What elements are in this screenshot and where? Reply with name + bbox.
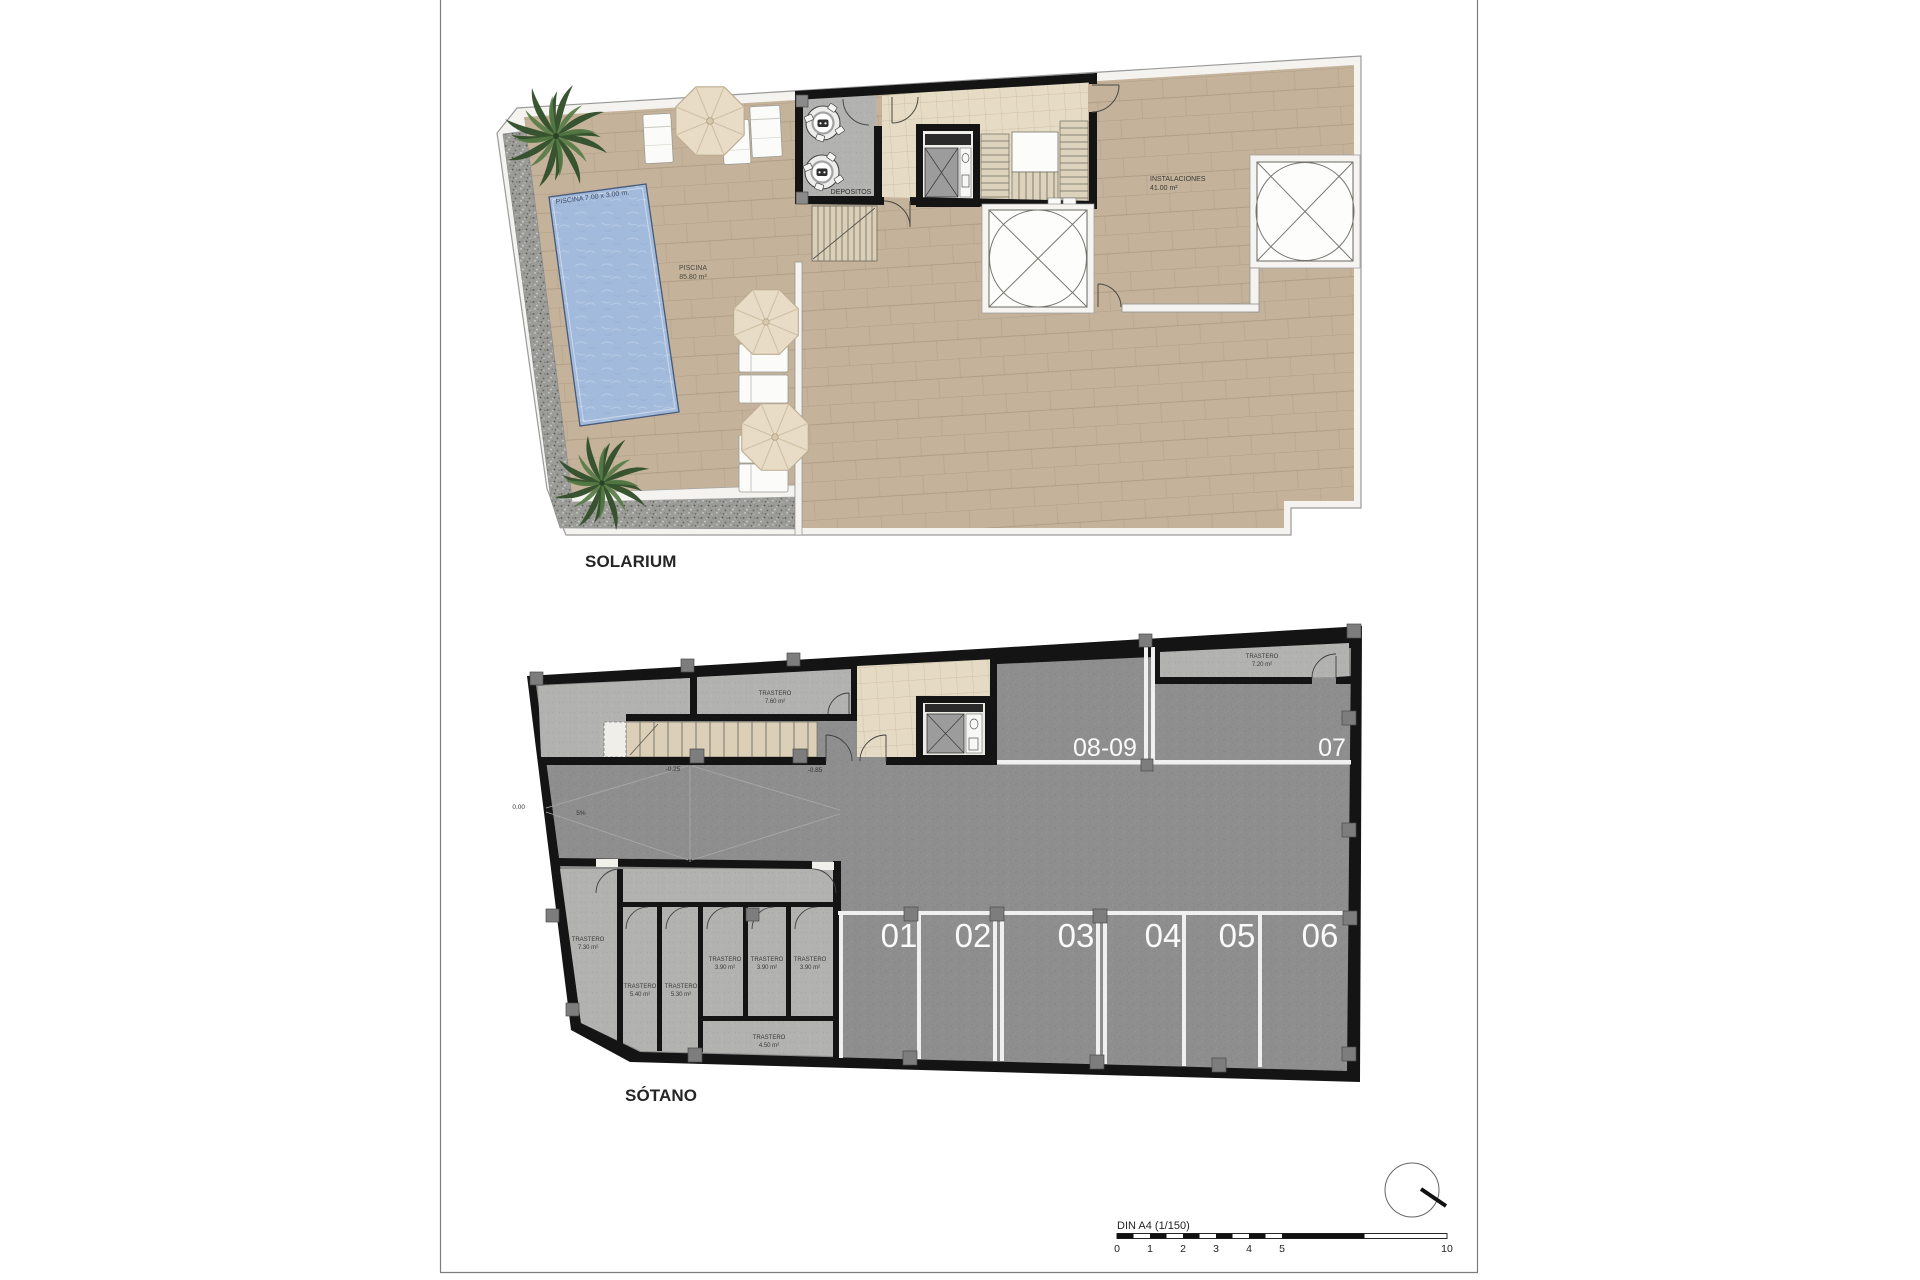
- svg-text:TRASTERO: TRASTERO: [759, 691, 792, 697]
- svg-text:DIN A4 (1/150): DIN A4 (1/150): [1117, 1220, 1190, 1232]
- svg-text:3.90 m²: 3.90 m²: [757, 965, 777, 971]
- svg-text:10: 10: [1441, 1243, 1453, 1255]
- svg-text:06: 06: [1302, 917, 1339, 954]
- svg-text:07: 07: [1318, 734, 1346, 762]
- svg-text:85.80 m²: 85.80 m²: [679, 274, 707, 281]
- svg-text:TRASTERO: TRASTERO: [572, 937, 605, 943]
- svg-text:4.50 m²: 4.50 m²: [759, 1043, 779, 1049]
- svg-text:0: 0: [1114, 1243, 1120, 1255]
- svg-text:41.00 m²: 41.00 m²: [1150, 185, 1178, 192]
- svg-text:-0.25: -0.25: [666, 766, 681, 773]
- svg-text:4: 4: [1246, 1243, 1252, 1255]
- svg-text:SOLARIUM: SOLARIUM: [585, 552, 676, 571]
- svg-text:PISCINA: PISCINA: [679, 265, 707, 272]
- svg-text:3.90 m²: 3.90 m²: [715, 965, 735, 971]
- svg-text:3.90 m²: 3.90 m²: [800, 965, 820, 971]
- svg-text:TRASTERO: TRASTERO: [665, 984, 698, 990]
- svg-text:7.30 m²: 7.30 m²: [578, 945, 598, 951]
- svg-text:01: 01: [881, 917, 918, 954]
- svg-text:7.20 m²: 7.20 m²: [1252, 662, 1272, 668]
- svg-text:TRASTERO: TRASTERO: [1246, 654, 1279, 660]
- svg-text:TRASTERO: TRASTERO: [624, 984, 657, 990]
- svg-text:5%: 5%: [576, 810, 586, 817]
- svg-text:TRASTERO: TRASTERO: [794, 957, 827, 963]
- svg-text:TRASTERO: TRASTERO: [709, 957, 742, 963]
- svg-text:SÓTANO: SÓTANO: [625, 1086, 697, 1105]
- svg-text:1: 1: [1147, 1243, 1153, 1255]
- svg-text:DEPOSITOS: DEPOSITOS: [831, 189, 872, 196]
- svg-text:05: 05: [1219, 917, 1256, 954]
- svg-text:2: 2: [1180, 1243, 1186, 1255]
- svg-text:5.40 m²: 5.40 m²: [630, 992, 650, 998]
- svg-text:04: 04: [1145, 917, 1182, 954]
- svg-text:-0.85: -0.85: [808, 767, 823, 774]
- svg-text:TRASTERO: TRASTERO: [751, 957, 784, 963]
- svg-text:5: 5: [1279, 1243, 1285, 1255]
- svg-text:3: 3: [1213, 1243, 1219, 1255]
- svg-text:02: 02: [955, 917, 992, 954]
- svg-text:08-09: 08-09: [1073, 734, 1137, 762]
- svg-text:0.00: 0.00: [512, 804, 525, 811]
- svg-text:TRASTERO: TRASTERO: [753, 1035, 786, 1041]
- svg-text:5.30 m²: 5.30 m²: [671, 992, 691, 998]
- svg-text:INSTALACIONES: INSTALACIONES: [1150, 176, 1206, 183]
- svg-text:03: 03: [1058, 917, 1095, 954]
- svg-text:7.60 m²: 7.60 m²: [765, 699, 785, 705]
